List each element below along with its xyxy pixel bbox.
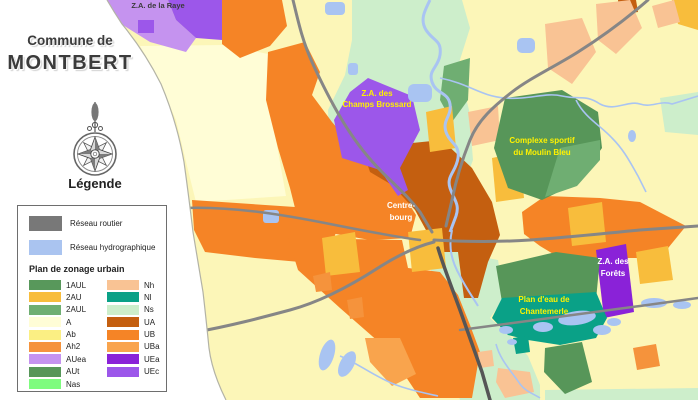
lake-chantemerle-2: [533, 322, 553, 332]
label-1AUL: 1AUL: [66, 281, 102, 290]
label-UA: UA: [144, 318, 162, 327]
label-AUea: AUea: [66, 355, 102, 364]
map-title: Commune de MONTBERT: [4, 33, 136, 75]
label-Nl: Nl: [144, 293, 162, 302]
swatch-Nl: [107, 292, 139, 302]
zonage-grid: 1AUL Nh 2AU Nl 2AUL Ns A UA Ab UB Ah2 UB…: [29, 280, 162, 389]
commune-name: MONTBERT: [4, 52, 136, 75]
swatch-UBa: [107, 342, 139, 352]
pond-north-3: [348, 63, 358, 75]
map-label-complexe-line2: du Moulin Bleu: [513, 148, 570, 157]
map-label-bourg-line1: Centre-: [387, 201, 415, 210]
swatch-Ab: [29, 330, 61, 340]
legend-box: Réseau routier Réseau hydrographique Pla…: [17, 205, 167, 392]
commune-label: Commune de: [4, 33, 136, 48]
pond-north-1: [325, 2, 345, 15]
routier-label: Réseau routier: [70, 219, 122, 228]
label-Ab: Ab: [66, 330, 102, 339]
routier-swatch: [29, 216, 62, 231]
label-UEc: UEc: [144, 367, 162, 376]
zone-2au-patch-3: [322, 232, 360, 276]
swatch-A: [29, 317, 61, 327]
zone-nl-small: [513, 336, 530, 354]
swatch-Nas: [29, 379, 61, 389]
zone-2au-patch-1: [426, 106, 456, 152]
zone-uec-small-square: [138, 20, 154, 33]
zone-nh-blob-4: [468, 106, 500, 146]
pond-north-2: [408, 84, 432, 102]
hydro-label: Réseau hydrographique: [70, 243, 155, 252]
map-label-bourg-line2: bourg: [390, 213, 413, 222]
label-2AUL: 2AUL: [66, 305, 102, 314]
label-Nh: Nh: [144, 281, 162, 290]
pond-east: [628, 130, 636, 142]
map-label-za-brossard-line2: Champs Brossard: [343, 100, 412, 109]
swatch-1AUL: [29, 280, 61, 290]
legend-row-routier: Réseau routier: [29, 216, 162, 231]
map-label-complexe-line1: Complexe sportif: [509, 136, 575, 145]
swatch-AUt: [29, 367, 61, 377]
swatch-UEc: [107, 367, 139, 377]
map-label-za-forets-line1: Z.A. des: [597, 257, 629, 266]
lake-chantemerle-5: [499, 326, 513, 334]
swatch-2AU: [29, 292, 61, 302]
swatch-Ns: [107, 305, 139, 315]
swatch-AUea: [29, 354, 61, 364]
label-Ah2: Ah2: [66, 342, 102, 351]
swatch-Nh: [107, 280, 139, 290]
zonage-title: Plan de zonage urbain: [29, 264, 162, 274]
label-A: A: [66, 318, 102, 327]
pond-northeast: [517, 38, 535, 53]
label-2AU: 2AU: [66, 293, 102, 302]
label-Nas: Nas: [66, 380, 102, 389]
lake-chantemerle-4: [607, 318, 621, 326]
swatch-UB: [107, 330, 139, 340]
zone-2au-patch-4: [568, 202, 606, 246]
label-UEa: UEa: [144, 355, 162, 364]
label-UBa: UBa: [144, 342, 162, 351]
legend-row-hydro: Réseau hydrographique: [29, 240, 162, 255]
map-label-za-forets-line2: Forêts: [601, 269, 626, 278]
lake-chantemerle-3: [593, 325, 611, 335]
zone-ah2-patch-3: [347, 297, 364, 319]
zone-ah2-patch-1: [633, 344, 660, 370]
label-AUt: AUt: [66, 367, 102, 376]
lake-chantemerle-6: [507, 339, 517, 345]
legend-title: Légende: [20, 176, 170, 191]
swatch-Ah2: [29, 342, 61, 352]
zoning-map-page: Z.A. de la Raye Z.A. des Champs Brossard…: [0, 0, 698, 400]
swatch-UA: [107, 317, 139, 327]
zone-2au-patch-5: [636, 246, 673, 284]
hydro-swatch: [29, 240, 62, 255]
label-UB: UB: [144, 330, 162, 339]
label-Ns: Ns: [144, 305, 162, 314]
swatch-UEa: [107, 354, 139, 364]
map-label-plan-eau-line1: Plan d'eau de: [518, 295, 570, 304]
map-label-za-brossard-line1: Z.A. des: [361, 89, 393, 98]
swatch-2AUL: [29, 305, 61, 315]
map-label-plan-eau-line2: Chantemerle: [520, 307, 569, 316]
map-label-za-raye: Z.A. de la Raye: [131, 1, 184, 10]
